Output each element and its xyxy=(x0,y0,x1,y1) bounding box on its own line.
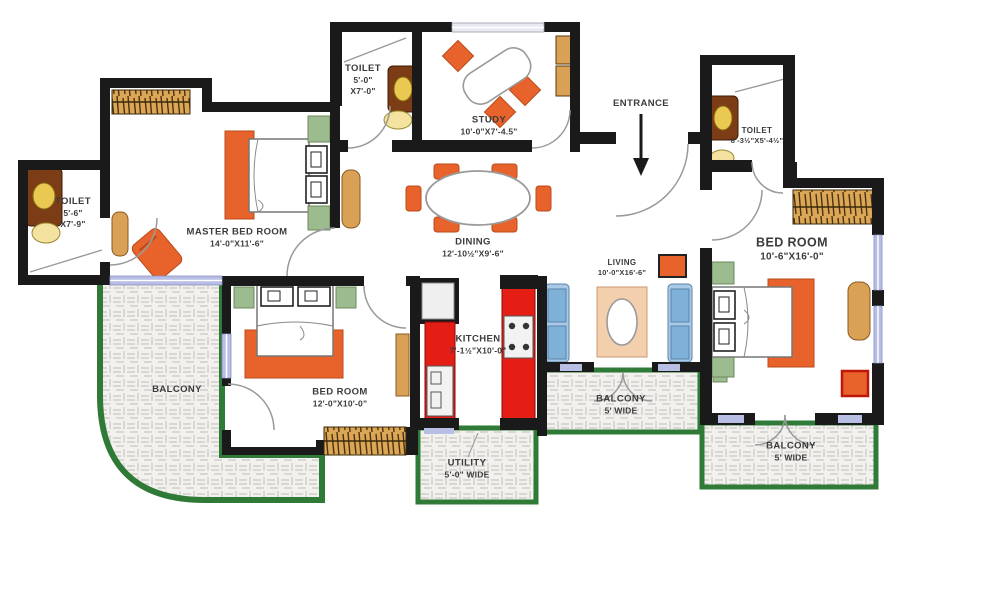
label-balcony-center: BALCONY 5' WIDE xyxy=(596,393,646,416)
entrance-arrow xyxy=(633,114,649,176)
label-utility: UTILITY 5'-0" WIDE xyxy=(445,457,490,480)
label-entrance: ENTRANCE xyxy=(613,98,669,110)
label-kitchen: KITCHEN 7'-1½"X10'-0" xyxy=(450,333,507,356)
toilet-right-fixtures xyxy=(708,78,788,166)
bedroom-left-furniture xyxy=(234,284,409,396)
label-bedroom-left: BED ROOM 12'-0"X10'-0" xyxy=(312,386,367,409)
label-balcony-left: BALCONY xyxy=(152,384,202,396)
bedroom-right-furniture xyxy=(712,190,873,396)
floor-plan-svg xyxy=(0,0,1000,600)
label-dining: DINING 12'-10½"X9'-6" xyxy=(442,236,504,259)
label-bedroom-right: BED ROOM 10'-6"X16'-0" xyxy=(756,234,828,263)
dining-table xyxy=(406,164,551,232)
label-balcony-right: BALCONY 5' WIDE xyxy=(766,440,816,463)
label-master-bedroom: MASTER BED ROOM 14'-0"X11'-6" xyxy=(187,226,288,249)
label-toilet-left: TOILET 5'-6" X7'-9" xyxy=(55,196,91,230)
wardrobe-bedroom-left xyxy=(324,427,406,455)
label-toilet-right: TOILET 8'-3½"X5'-4½" xyxy=(731,126,783,146)
floor-plan: TOILET 5'-6" X7'-9" MASTER BED ROOM 14'-… xyxy=(0,0,1000,600)
master-bed xyxy=(112,90,360,282)
label-living: LIVING 10'-0"X16'-6" xyxy=(598,258,646,278)
label-study: STUDY 10'-0"X7'-4.5" xyxy=(461,114,518,137)
label-toilet-top: TOILET 5'-0" X7'-0" xyxy=(345,63,381,97)
